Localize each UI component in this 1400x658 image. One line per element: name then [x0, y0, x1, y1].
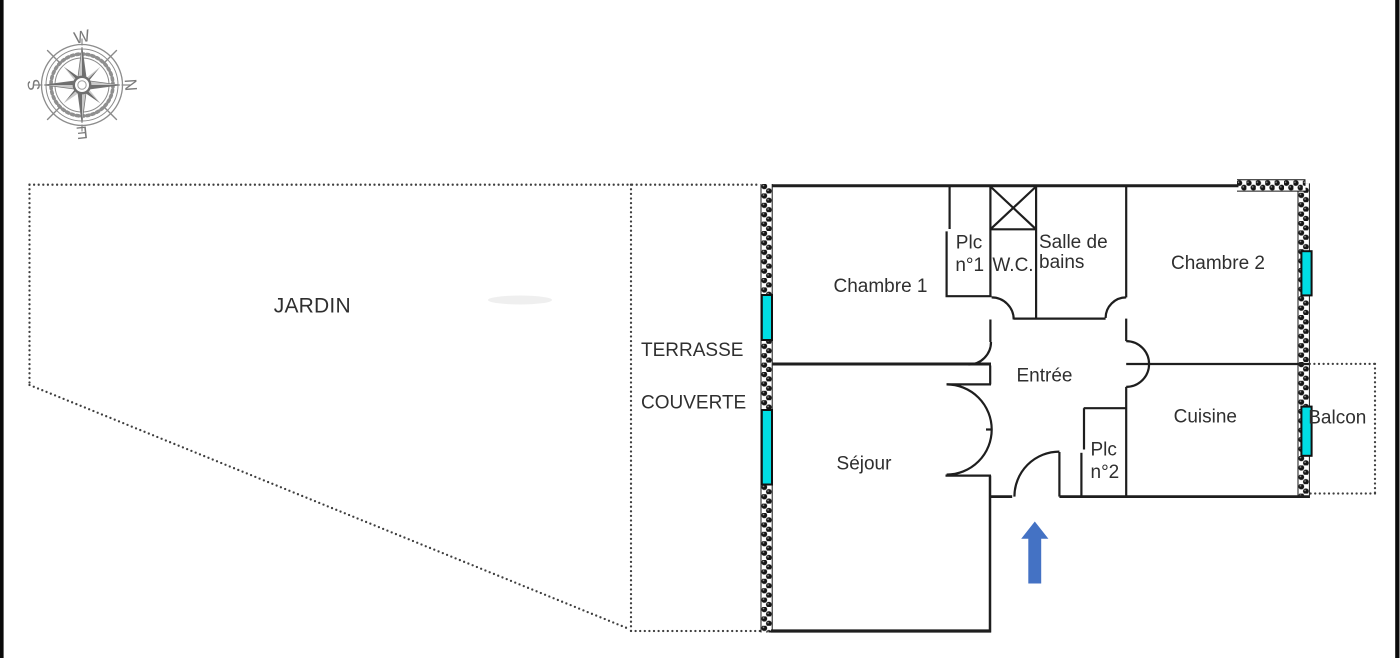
- svg-text:Plc: Plc: [1091, 440, 1117, 461]
- svg-text:bains: bains: [1039, 252, 1084, 273]
- svg-text:Plc: Plc: [956, 233, 982, 254]
- svg-text:Entrée: Entrée: [1017, 366, 1073, 387]
- svg-text:Salle de: Salle de: [1039, 232, 1108, 253]
- svg-text:W.C.: W.C.: [992, 255, 1033, 276]
- svg-text:E: E: [75, 122, 88, 142]
- svg-text:JARDIN: JARDIN: [274, 295, 351, 318]
- svg-text:n°2: n°2: [1091, 462, 1120, 483]
- svg-text:N: N: [121, 78, 141, 92]
- svg-text:Chambre 1: Chambre 1: [834, 276, 928, 297]
- svg-text:Séjour: Séjour: [837, 454, 893, 475]
- svg-text:Chambre 2: Chambre 2: [1171, 253, 1265, 274]
- svg-text:COUVERTE: COUVERTE: [641, 393, 746, 414]
- svg-text:Cuisine: Cuisine: [1174, 407, 1237, 428]
- svg-text:TERRASSE: TERRASSE: [641, 340, 743, 361]
- svg-text:Balcon: Balcon: [1308, 408, 1366, 429]
- svg-text:n°1: n°1: [955, 255, 984, 276]
